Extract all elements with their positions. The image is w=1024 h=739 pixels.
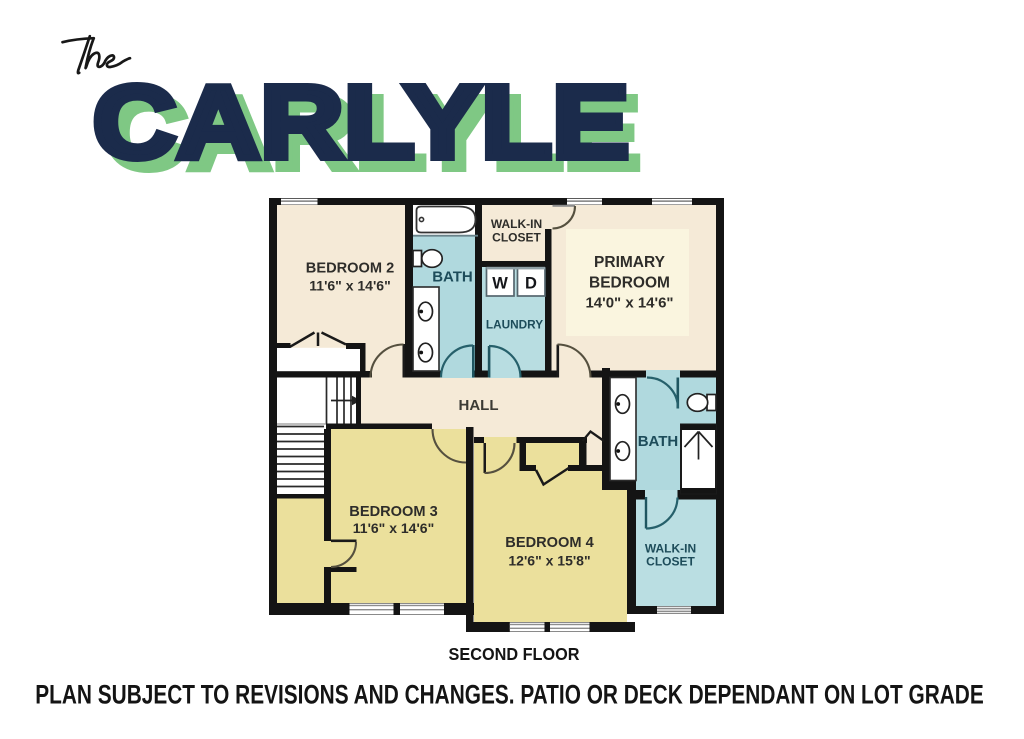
svg-text:CLOSET: CLOSET	[492, 231, 541, 245]
svg-text:BEDROOM 2: BEDROOM 2	[306, 261, 394, 277]
svg-text:CARLYLE: CARLYLE	[93, 65, 629, 180]
svg-text:BEDROOM 4: BEDROOM 4	[505, 535, 594, 551]
svg-text:11'6" x 14'6": 11'6" x 14'6"	[353, 520, 434, 536]
svg-text:SECOND FLOOR: SECOND FLOOR	[449, 644, 580, 664]
svg-text:W: W	[492, 275, 508, 293]
svg-text:BATH: BATH	[638, 433, 679, 450]
svg-text:BEDROOM 3: BEDROOM 3	[349, 504, 437, 520]
svg-text:HALL: HALL	[459, 397, 499, 414]
svg-text:BEDROOM: BEDROOM	[589, 275, 670, 292]
svg-text:LAUNDRY: LAUNDRY	[486, 318, 543, 332]
svg-text:12'6" x 15'8": 12'6" x 15'8"	[508, 553, 590, 569]
svg-text:PRIMARY: PRIMARY	[594, 254, 666, 271]
svg-text:WALK-IN: WALK-IN	[491, 217, 542, 231]
svg-text:D: D	[525, 275, 537, 293]
svg-text:BATH: BATH	[432, 269, 473, 286]
svg-text:PLAN SUBJECT TO REVISIONS AND: PLAN SUBJECT TO REVISIONS AND CHANGES. P…	[35, 680, 983, 710]
svg-text:14'0" x 14'6": 14'0" x 14'6"	[585, 295, 673, 312]
svg-text:11'6" x 14'6": 11'6" x 14'6"	[309, 278, 390, 294]
svg-text:CLOSET: CLOSET	[646, 555, 695, 569]
svg-text:WALK-IN: WALK-IN	[645, 542, 696, 556]
